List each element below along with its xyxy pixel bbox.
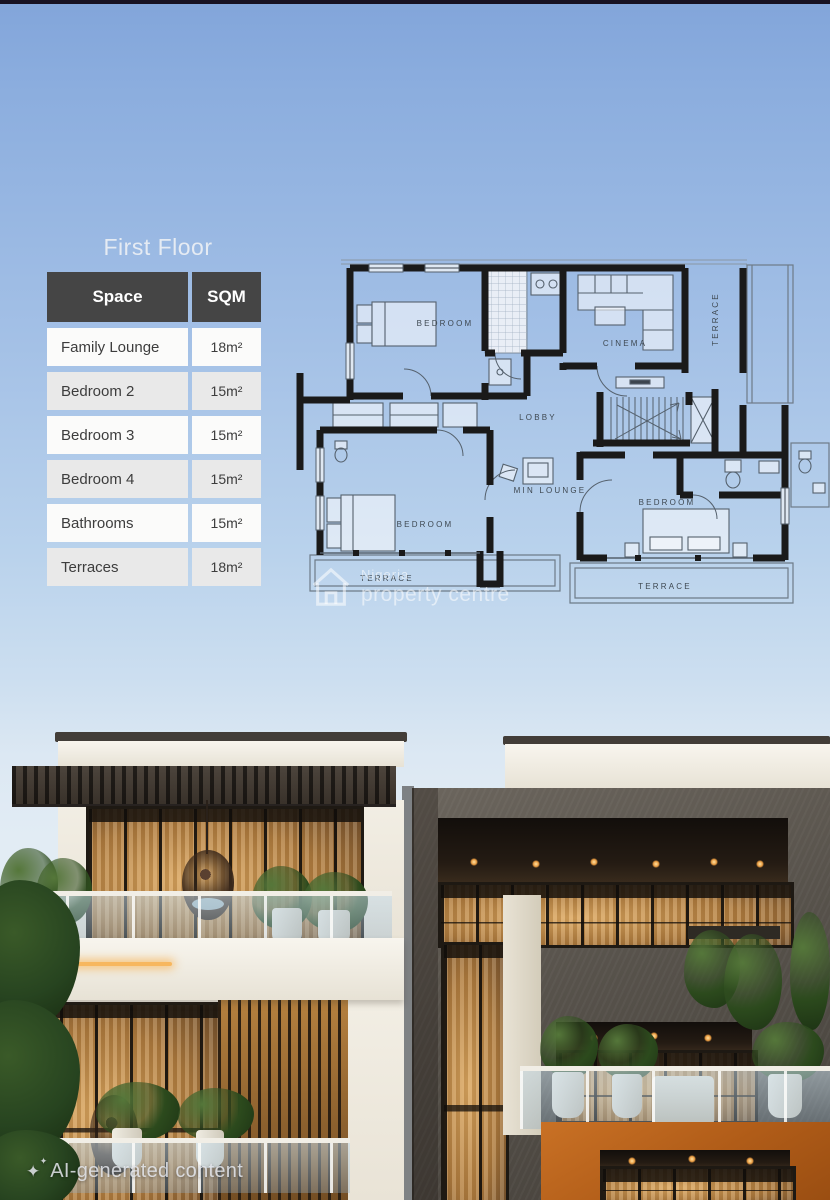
page: First Floor Space SQM Family Lounge 18m²…	[0, 0, 830, 1200]
hanging-plant	[724, 934, 782, 1030]
sqm-cell: 15m²	[192, 504, 261, 542]
table-header-row: Space SQM	[47, 272, 265, 322]
downlight-icon	[628, 1157, 636, 1165]
top-dark-strip	[0, 0, 830, 4]
property-centre-logo-icon	[310, 564, 352, 610]
room-label-bedroom2: BEDROOM	[397, 520, 454, 529]
left-roof-slab	[58, 741, 404, 767]
downlight-icon	[688, 1155, 696, 1163]
sqm-cell: 15m²	[192, 460, 261, 498]
room-label-terrace-right: TERRACE	[711, 292, 720, 346]
space-cell: Family Lounge	[47, 328, 188, 366]
space-cell: Bedroom 4	[47, 460, 188, 498]
left-lower-column	[348, 1000, 404, 1200]
right-balcony-glass-rail	[520, 1066, 830, 1129]
ai-generated-text: AI-generated content	[50, 1160, 243, 1183]
sqm-cell: 15m²	[192, 372, 261, 410]
table-header-sqm: SQM	[192, 272, 261, 322]
furniture	[327, 273, 825, 557]
table-row: Bedroom 3 15m²	[47, 416, 265, 454]
stairs	[611, 397, 683, 443]
sqm-cell: 18m²	[192, 328, 261, 366]
downlight-icon	[756, 860, 764, 868]
hanging-plant	[790, 912, 830, 1030]
right-parapet	[505, 744, 830, 789]
space-sqm-table: Space SQM Family Lounge 18m² Bedroom 2 1…	[47, 272, 265, 586]
room-label-cinema: CINEMA	[603, 339, 647, 348]
downlight-icon	[710, 858, 718, 866]
table-row: Bedroom 2 15m²	[47, 372, 265, 410]
downlight-icon	[746, 1157, 754, 1165]
space-cell: Bedroom 3	[47, 416, 188, 454]
space-cell: Terraces	[47, 548, 188, 586]
downlight-icon	[652, 860, 660, 868]
watermark: Nigeria property centre	[310, 564, 510, 610]
right-recess-ceiling	[438, 818, 788, 882]
table-header-space: Space	[47, 272, 188, 322]
bathroom-tiles	[485, 270, 527, 353]
pergola-slats	[12, 766, 396, 807]
room-label-lobby: LOBBY	[519, 413, 557, 422]
table-row: Bathrooms 15m²	[47, 504, 265, 542]
page-title: First Floor	[0, 234, 316, 261]
sqm-cell: 15m²	[192, 416, 261, 454]
space-cell: Bathrooms	[47, 504, 188, 542]
orange-block-window	[600, 1166, 796, 1200]
egg-chair-cord	[206, 800, 208, 854]
table-row: Family Lounge 18m²	[47, 328, 265, 366]
downlight-icon	[590, 858, 598, 866]
ai-generated-label: ✦✦ AI-generated content	[26, 1160, 243, 1183]
room-label-min-lounge: MIN LOUNGE	[514, 486, 587, 495]
sparkle-icon: ✦✦	[26, 1162, 40, 1182]
room-label-bedroom1: BEDROOM	[417, 319, 474, 328]
watermark-line2: property centre	[361, 584, 510, 605]
table-row: Bedroom 4 15m²	[47, 460, 265, 498]
downlight-icon	[532, 860, 540, 868]
sqm-cell: 18m²	[192, 548, 261, 586]
watermark-text: Nigeria property centre	[361, 564, 510, 605]
right-facade-corner-shadow	[412, 788, 438, 1200]
downlight-icon	[704, 1034, 712, 1042]
space-cell: Bedroom 2	[47, 372, 188, 410]
table-row: Terraces 18m²	[47, 548, 265, 586]
right-left-column-window	[441, 942, 509, 1200]
watermark-line1: Nigeria	[361, 568, 510, 581]
room-label-terrace-br: TERRACE	[638, 582, 692, 591]
room-label-bedroom3: BEDROOM	[639, 498, 696, 507]
roof-outline	[341, 260, 747, 264]
downlight-icon	[470, 858, 478, 866]
